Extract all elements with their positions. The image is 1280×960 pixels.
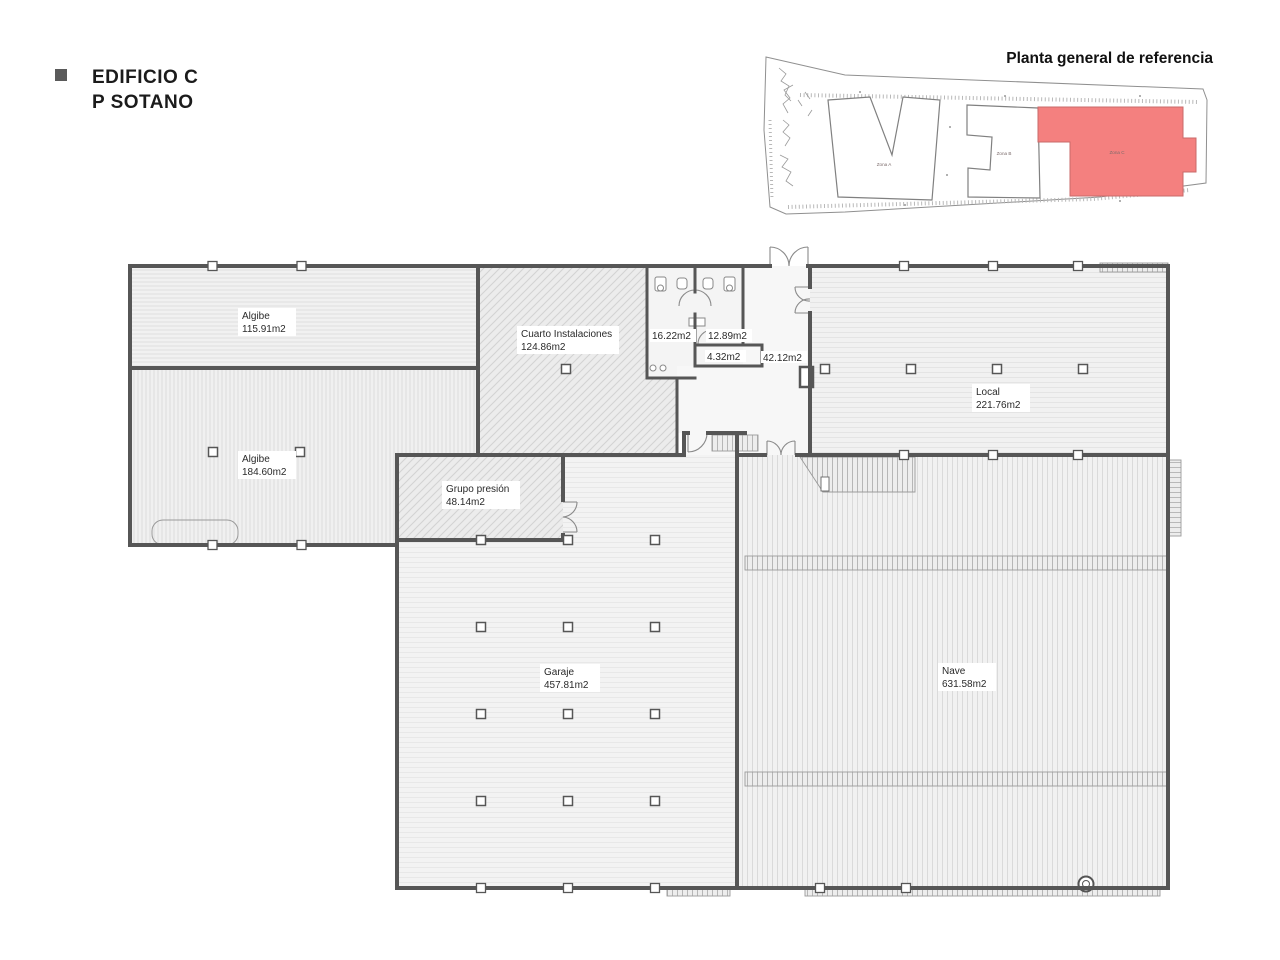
- room-aseo3-area: 4.32m2: [707, 352, 741, 363]
- room-nave-name: Nave: [942, 666, 966, 677]
- nave-band-upper: [745, 556, 1168, 570]
- fixture-icon: [660, 365, 666, 371]
- label-aseo3: 4.32m2: [705, 350, 746, 363]
- label-aseo1: 16.22m2: [650, 329, 696, 342]
- reference-plan-title: Planta general de referencia: [1006, 50, 1213, 67]
- room-pasillo-floor-2: [677, 366, 743, 433]
- label-aseo2: 12.89m2: [706, 329, 752, 342]
- label-algibe1: Algibe 115.91m2: [238, 308, 296, 336]
- zone-c-label: Zona C: [1109, 150, 1125, 155]
- room-algibe1-floor: [130, 266, 478, 368]
- floor-plan: Algibe 115.91m2 Algibe 184.60m2 Cuarto I…: [130, 247, 1181, 896]
- room-grupo-name: Grupo presión: [446, 484, 509, 495]
- room-garaje-area: 457.81m2: [544, 680, 589, 691]
- room-algibe1-area: 115.91m2: [242, 324, 286, 335]
- room-pasillo-area: 42.12m2: [763, 353, 802, 364]
- nave-stair-post: [821, 477, 829, 491]
- room-grupo-area: 48.14m2: [446, 497, 485, 508]
- zone-a-label: Zona A: [877, 162, 892, 167]
- room-garaje-name: Garaje: [544, 667, 574, 678]
- zone-a-outline: [828, 97, 940, 200]
- room-aseo1-area: 16.22m2: [652, 331, 691, 342]
- entrance-double-door: [770, 247, 808, 266]
- site-terrain: [779, 68, 812, 186]
- zone-b-label: Zona B: [997, 151, 1012, 156]
- nave-band-lower: [745, 772, 1168, 786]
- label-pasillo: 42.12m2: [761, 351, 807, 364]
- room-local-area: 221.76m2: [976, 400, 1021, 411]
- label-garaje: Garaje 457.81m2: [540, 664, 600, 692]
- room-nave-area: 631.58m2: [942, 679, 987, 690]
- reference-plan: Planta general de referencia Zona A Zona…: [764, 50, 1213, 214]
- label-algibe2: Algibe 184.60m2: [238, 451, 296, 479]
- room-algibe1-name: Algibe: [242, 311, 270, 322]
- sink-icon: [703, 278, 713, 289]
- room-algibe2-name: Algibe: [242, 454, 270, 465]
- room-floors: [130, 266, 1168, 888]
- wc-bowl-icon: [658, 285, 664, 291]
- room-cuarto-area: 124.86m2: [521, 342, 566, 353]
- label-grupo: Grupo presión 48.14m2: [442, 481, 520, 509]
- drain-grate-icon: [689, 318, 705, 326]
- room-cuarto-name: Cuarto Instalaciones: [521, 329, 612, 340]
- fixture-icon: [650, 365, 656, 371]
- sink-icon: [677, 278, 687, 289]
- wc-bowl-icon: [727, 285, 733, 291]
- room-local-name: Local: [976, 387, 1000, 398]
- label-local: Local 221.76m2: [972, 384, 1030, 412]
- room-aseo2-area: 12.89m2: [708, 331, 747, 342]
- room-algibe2-area: 184.60m2: [242, 467, 287, 478]
- room-local-floor: [810, 266, 1168, 455]
- label-cuarto: Cuarto Instalaciones 124.86m2: [517, 326, 619, 354]
- label-nave: Nave 631.58m2: [938, 663, 996, 691]
- plan-canvas: Planta general de referencia Zona A Zona…: [0, 0, 1280, 960]
